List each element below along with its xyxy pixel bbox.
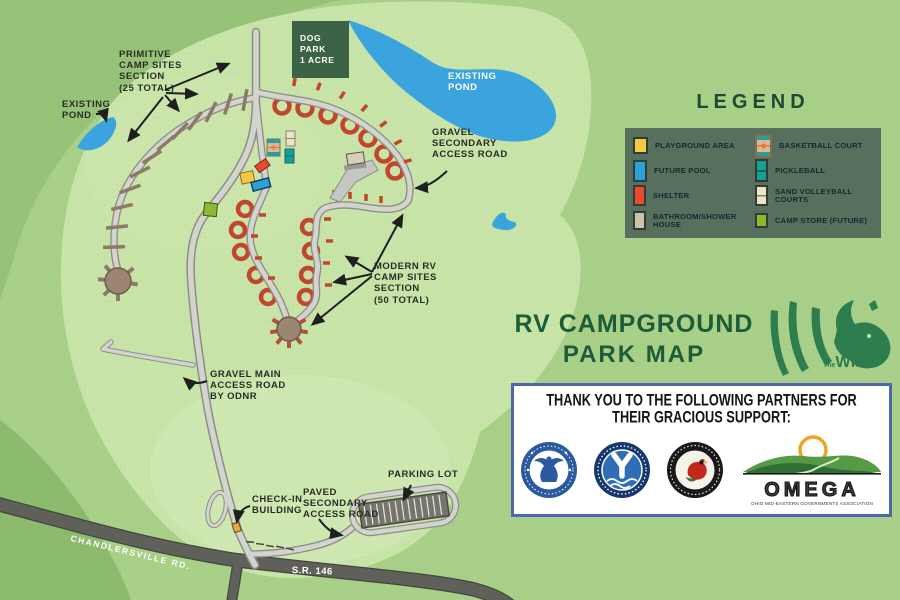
omega-wordmark: OMEGA [739, 480, 885, 500]
omega-logo: OMEGA OHIO MID-EASTERN GOVERNMENTS ASSOC… [739, 434, 885, 506]
page-title: RV CAMPGROUND PARK MAP [505, 310, 763, 369]
page-title-line1: RV CAMPGROUND [505, 310, 763, 339]
sand-volleyball-icon [286, 131, 295, 146]
wilds-wordmark-name: Wilds [835, 354, 879, 371]
legend-item-label: SAND VOLLEYBALL COURTS [775, 188, 877, 204]
partners-heading-line2: THEIR GRACIOUS SUPPORT: [537, 409, 867, 428]
legend-item-label: PICKLEBALL [775, 167, 825, 175]
camp-store-swatch-icon [755, 213, 768, 228]
bathroom-swatch-icon [633, 211, 646, 230]
wilds-wordmark-prefix: The [823, 362, 835, 369]
omega-mountains-sun-icon [741, 434, 883, 476]
basketball-court-icon [267, 139, 280, 156]
label-modern-rv-camp-sites: MODERN RV CAMP SITES SECTION (50 TOTAL) [374, 261, 437, 306]
label-existing-pond-right: EXISTING POND [448, 71, 496, 93]
legend-item-bathroom: BATHROOM/SHOWER HOUSE [633, 208, 755, 233]
omega-subtext: OHIO MID-EASTERN GOVERNMENTS ASSOCIATION [739, 501, 885, 506]
legend-item-camp-store: CAMP STORE (FUTURE) [755, 208, 877, 233]
camp-store-icon [203, 202, 217, 216]
partners-panel: THANK YOU TO THE FOLLOWING PARTNERS FOR … [511, 383, 892, 517]
basketball-swatch-icon [755, 134, 772, 158]
legend-title: LEGEND [625, 91, 881, 114]
legend-item-volleyball: SAND VOLLEYBALL COURTS [755, 183, 877, 208]
muskingum-county-water-seal-icon [593, 441, 651, 499]
partner-logos-row: OMEGA OHIO MID-EASTERN GOVERNMENTS ASSOC… [520, 430, 885, 510]
label-sr-146: S.R. 146 [292, 565, 333, 578]
label-gravel-secondary-road: GRAVEL SECONDARY ACCESS ROAD [432, 127, 508, 161]
label-parking-lot: PARKING LOT [388, 469, 458, 480]
label-check-in-building: CHECK-IN BUILDING [252, 494, 302, 516]
label-primitive-camp-sites: PRIMITIVE CAMP SITES SECTION (25 TOTAL) [119, 49, 182, 94]
legend-item-shelter: SHELTER [633, 183, 755, 208]
page-title-line2: PARK MAP [505, 341, 763, 369]
legend-item-future-pool: FUTURE POOL [633, 158, 755, 183]
odnr-seal-icon [666, 441, 724, 499]
legend-item-pickleball: PICKLEBALL [755, 158, 877, 183]
the-wilds-logo: TheWilds [765, 298, 897, 380]
label-paved-secondary-road: PAVED SECONDARY ACCESS ROAD [303, 487, 379, 521]
legend-item-basketball: BASKETBALL COURT [755, 133, 877, 158]
legend-item-label: PLAYGROUND AREA [655, 142, 735, 150]
playground-swatch-icon [633, 137, 648, 154]
legend-panel: PLAYGROUND AREA FUTURE POOL SHELTER BATH… [625, 128, 881, 238]
pickleball-swatch-icon [755, 159, 768, 182]
legend-item-label: FUTURE POOL [654, 167, 711, 175]
legend-item-label: BATHROOM/SHOWER HOUSE [653, 213, 755, 229]
legend-item-label: CAMP STORE (FUTURE) [775, 217, 867, 225]
wilds-wordmark: TheWilds [823, 354, 879, 372]
future-pool-swatch-icon [633, 160, 647, 182]
rv-campground-park-map: PRIMITIVE CAMP SITES SECTION (25 TOTAL) … [0, 0, 900, 600]
label-existing-pond-left: EXISTING POND [62, 99, 110, 121]
pickleball-icon [285, 149, 294, 163]
shelter-swatch-icon [633, 185, 646, 206]
legend-item-label: BASKETBALL COURT [779, 142, 863, 150]
legend-item-playground: PLAYGROUND AREA [633, 133, 755, 158]
dog-park-sign: DOG PARK 1 ACRE [292, 21, 349, 78]
us-commerce-eda-seal-icon [520, 441, 578, 499]
legend-item-label: SHELTER [653, 192, 689, 200]
volleyball-swatch-icon [755, 185, 768, 206]
label-gravel-main-road: GRAVEL MAIN ACCESS ROAD BY ODNR [210, 369, 286, 403]
